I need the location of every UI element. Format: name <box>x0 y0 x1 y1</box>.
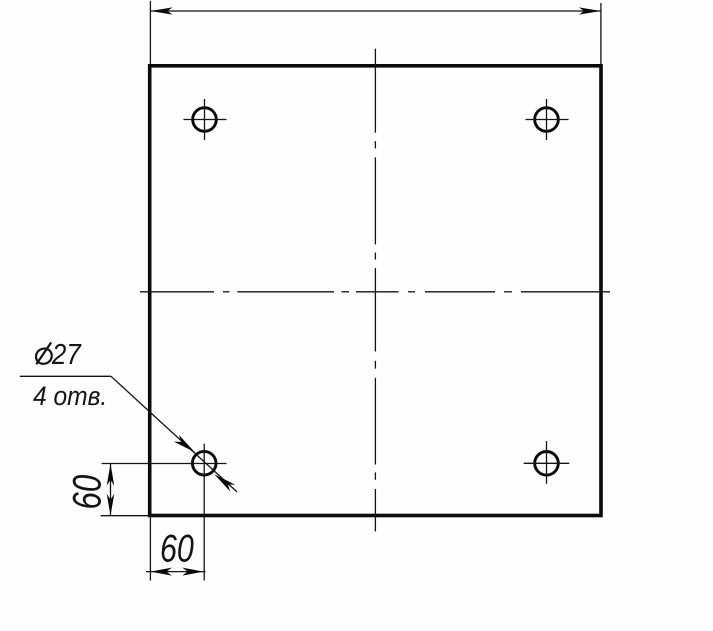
svg-text:60: 60 <box>65 475 110 510</box>
svg-text:60: 60 <box>160 527 194 570</box>
svg-text:27: 27 <box>51 337 82 370</box>
svg-text:4 отв.: 4 отв. <box>33 382 107 411</box>
